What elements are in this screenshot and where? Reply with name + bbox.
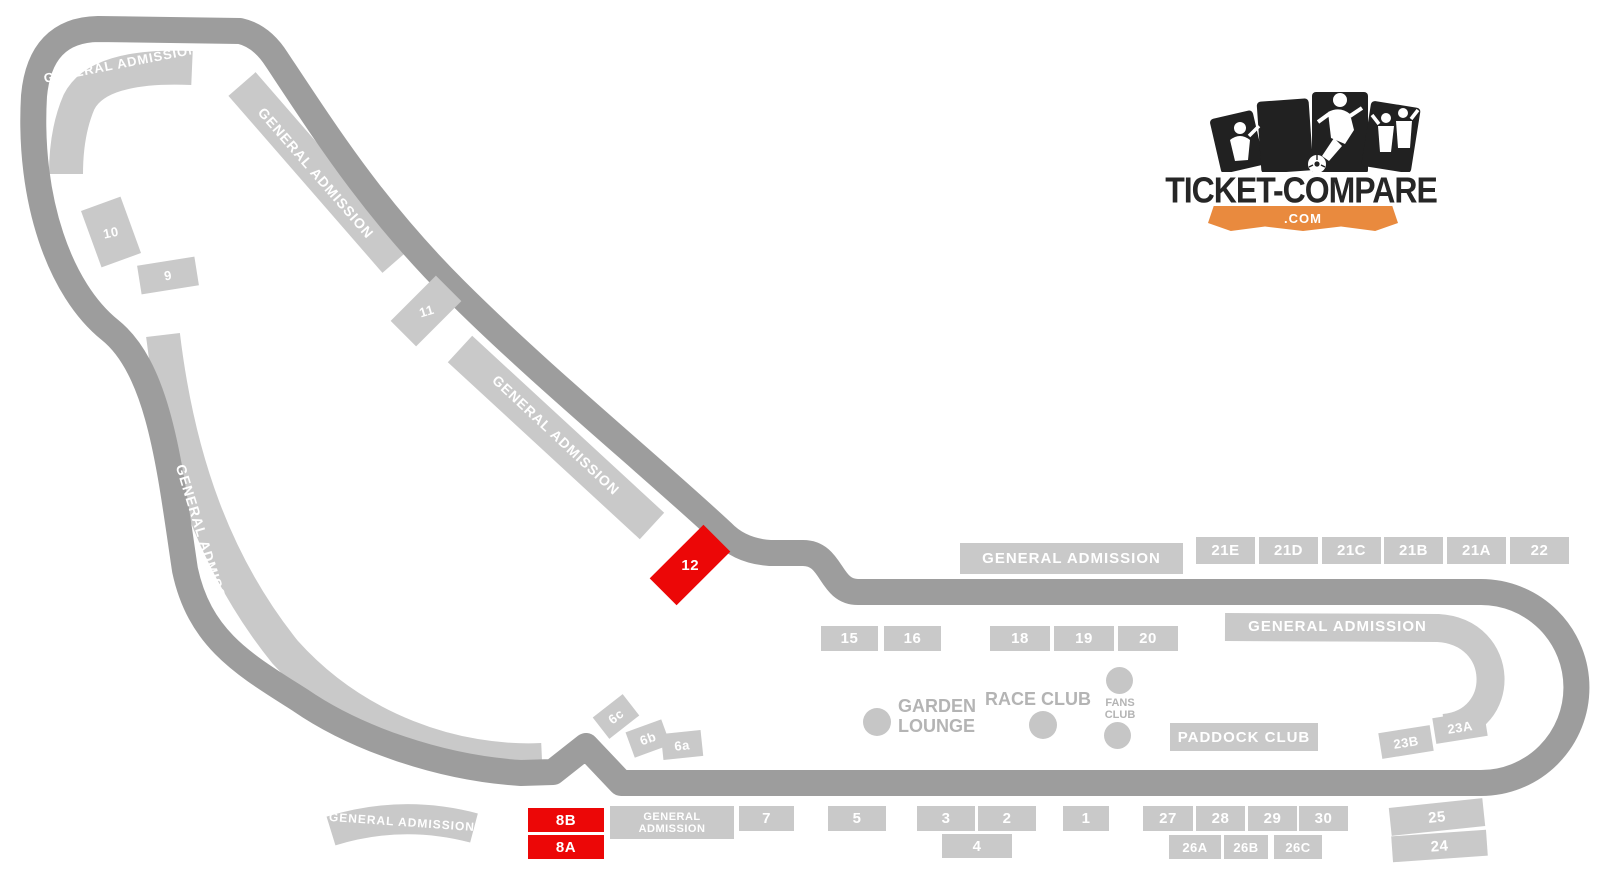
stand-22[interactable]: 22 (1510, 537, 1569, 564)
stand-7[interactable]: 7 (739, 806, 794, 831)
logo-domain: .COM (1284, 211, 1322, 226)
stand-21A[interactable]: 21A (1447, 537, 1506, 564)
stand-20[interactable]: 20 (1118, 626, 1178, 651)
stand-21D[interactable]: 21D (1259, 537, 1318, 564)
stand-8B[interactable]: 8B (528, 808, 604, 832)
stand-paddock-club[interactable]: PADDOCK CLUB (1170, 723, 1318, 751)
logo-title: TICKET-COMPARE (1160, 170, 1442, 211)
stand-4[interactable]: 4 (942, 834, 1012, 858)
fans-club-marker-top (1106, 667, 1133, 694)
stand-21C[interactable]: 21C (1322, 537, 1381, 564)
stand-16[interactable]: 16 (884, 626, 941, 651)
race-club-marker (1029, 711, 1057, 739)
ga-band-hairpin (66, 68, 192, 174)
circuit-seating-map: GENERAL ADMISSION GENERAL ADMISSION GENE… (0, 0, 1607, 870)
stand-21E[interactable]: 21E (1196, 537, 1255, 564)
stand-15[interactable]: 15 (821, 626, 878, 651)
ga-band-left (163, 335, 542, 760)
stand-2[interactable]: 2 (978, 806, 1036, 831)
stand-18[interactable]: 18 (990, 626, 1050, 651)
stand-12-label: 12 (681, 558, 699, 573)
logo-domain-ribbon: .COM (1208, 206, 1398, 231)
stand-6a[interactable]: 6a (661, 730, 703, 760)
garden-lounge-label: GARDEN LOUNGE (898, 696, 976, 736)
ga-label-parabolica[interactable]: GENERAL ADMISSION (1225, 618, 1450, 635)
stand-27[interactable]: 27 (1143, 806, 1193, 831)
stand-3[interactable]: 3 (917, 806, 975, 831)
stand-26C[interactable]: 26C (1274, 835, 1322, 859)
stand-30[interactable]: 30 (1299, 806, 1348, 831)
stand-26A[interactable]: 26A (1169, 835, 1221, 859)
stand-5[interactable]: 5 (828, 806, 886, 831)
fans-club-marker-bottom (1104, 722, 1131, 749)
stand-1[interactable]: 1 (1063, 806, 1109, 831)
stand-ga-top-straight[interactable]: GENERAL ADMISSION (960, 543, 1183, 574)
stand-29[interactable]: 29 (1248, 806, 1297, 831)
ticket-compare-logo: TICKET-COMPARE .COM (1160, 60, 1442, 240)
stand-8A[interactable]: 8A (528, 835, 604, 859)
stand-28[interactable]: 28 (1196, 806, 1245, 831)
stand-19[interactable]: 19 (1054, 626, 1114, 651)
garden-lounge-marker (863, 708, 891, 736)
stand-10-label: 10 (102, 224, 120, 240)
stand-ga-pit-straight[interactable]: GENERAL ADMISSION (610, 806, 734, 839)
race-club-label: RACE CLUB (985, 690, 1091, 710)
fans-club-label: FANS CLUB (1096, 697, 1144, 721)
stand-26B[interactable]: 26B (1224, 835, 1268, 859)
stand-21B[interactable]: 21B (1384, 537, 1443, 564)
stand-11-label: 11 (417, 303, 435, 320)
ga-band-parabolica (1225, 627, 1491, 728)
logo-silhouettes-art (1160, 60, 1442, 172)
